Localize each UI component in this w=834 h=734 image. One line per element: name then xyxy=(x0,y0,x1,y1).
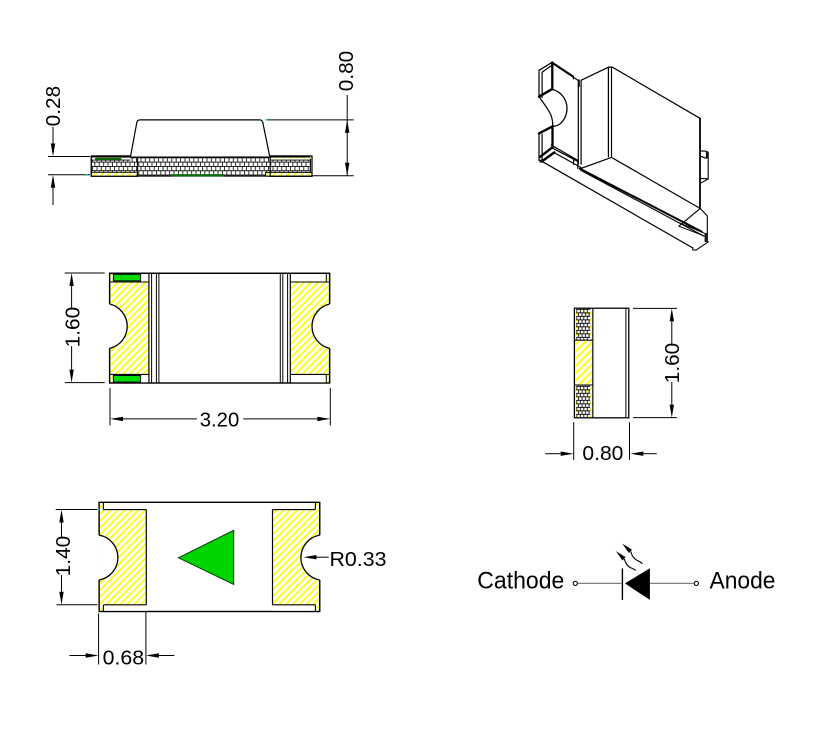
svg-text:1.40: 1.40 xyxy=(53,536,75,577)
svg-text:Cathode: Cathode xyxy=(477,567,564,594)
svg-text:1.60: 1.60 xyxy=(662,343,684,384)
svg-text:R0.33: R0.33 xyxy=(330,549,387,571)
svg-text:0.80: 0.80 xyxy=(582,443,623,465)
svg-text:0.80: 0.80 xyxy=(336,51,358,92)
svg-text:Anode: Anode xyxy=(710,567,776,594)
svg-text:3.20: 3.20 xyxy=(200,409,240,431)
svg-text:0.28: 0.28 xyxy=(43,86,65,127)
svg-text:1.60: 1.60 xyxy=(62,307,84,348)
svg-text:0.68: 0.68 xyxy=(103,647,145,669)
